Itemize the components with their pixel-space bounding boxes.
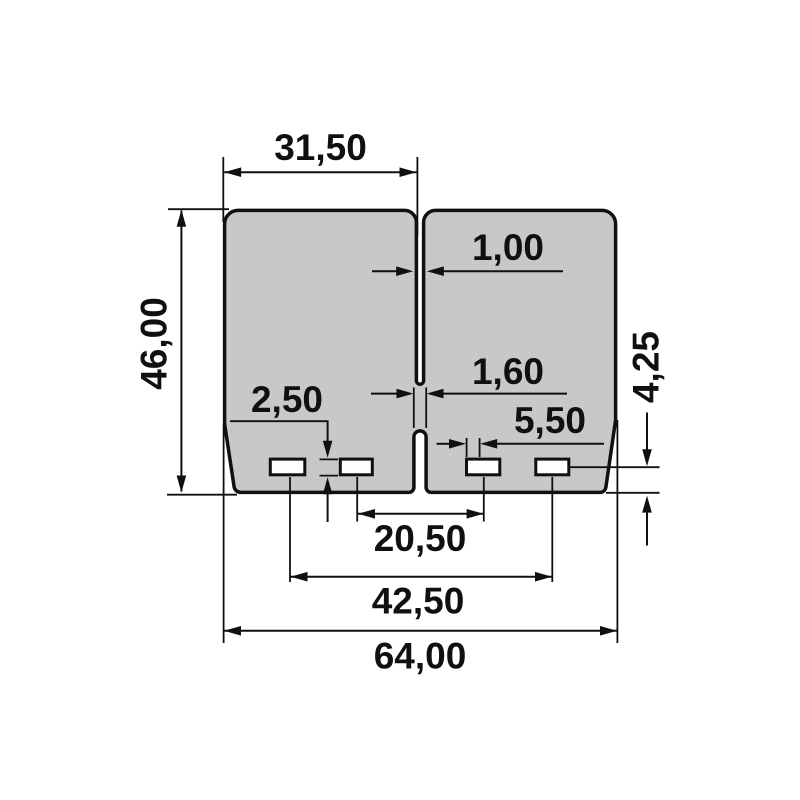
svg-text:1,00: 1,00 xyxy=(472,227,544,268)
svg-text:20,50: 20,50 xyxy=(374,518,467,559)
svg-text:5,50: 5,50 xyxy=(514,400,586,441)
svg-text:2,50: 2,50 xyxy=(251,379,323,420)
svg-text:64,00: 64,00 xyxy=(374,636,467,677)
svg-text:42,50: 42,50 xyxy=(372,581,465,622)
svg-text:46,00: 46,00 xyxy=(134,297,175,390)
svg-text:4,25: 4,25 xyxy=(626,331,667,403)
svg-text:1,60: 1,60 xyxy=(472,351,544,392)
svg-text:31,50: 31,50 xyxy=(274,127,367,168)
